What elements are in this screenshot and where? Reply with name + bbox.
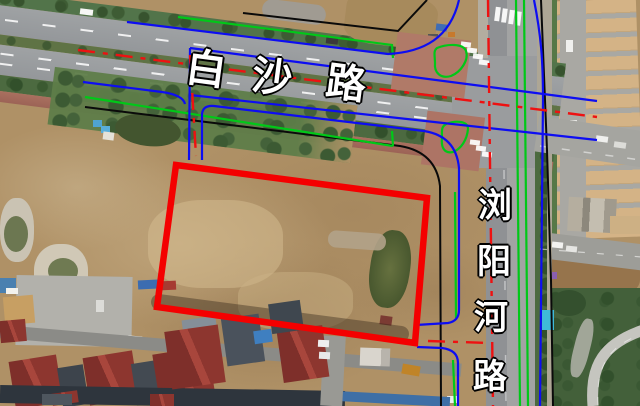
se-curved-road <box>593 328 640 406</box>
parcel-outline <box>157 165 427 343</box>
traffic-island-outline <box>435 45 467 77</box>
road-edge <box>190 95 597 140</box>
boundary-line <box>243 0 427 31</box>
aerial-parcel-map: 白 沙 路 浏 阳 河 路 <box>0 0 640 406</box>
centerline <box>428 341 490 343</box>
road-edge <box>127 0 459 54</box>
crosswalk-zebra-north <box>494 7 522 26</box>
liuyanghe-road-label-char: 阳 <box>477 245 511 279</box>
road-edge <box>83 82 185 104</box>
lane-dash-se-road <box>540 249 640 257</box>
green-line <box>453 192 456 406</box>
lane-dash-ne-road <box>540 146 640 161</box>
green-line <box>516 0 520 406</box>
cad-overlay <box>0 0 640 406</box>
baisha-road-label-char: 白 <box>184 48 229 93</box>
green-line <box>524 0 528 406</box>
boundary-line <box>85 107 441 406</box>
green-planning-lines <box>85 0 528 406</box>
liuyanghe-road-label-char: 河 <box>474 301 508 335</box>
baisha-road-label-char: 路 <box>324 62 369 107</box>
road-edge <box>417 347 458 406</box>
liuyanghe-road-label-char: 路 <box>473 360 507 394</box>
liuyanghe-road-label-char: 浏 <box>478 189 512 223</box>
road-edge <box>534 0 543 406</box>
baisha-road-label-char: 沙 <box>250 56 295 101</box>
road-edge <box>416 310 459 325</box>
